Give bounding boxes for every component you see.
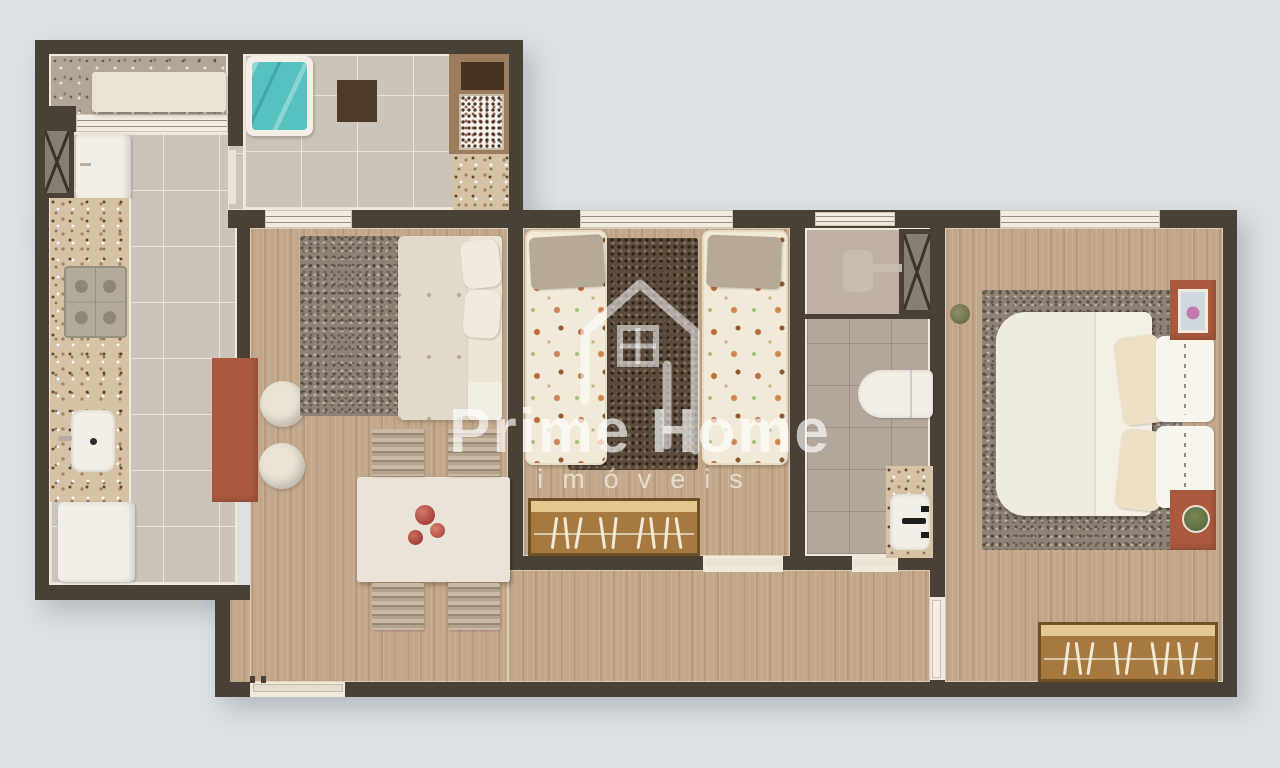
floor-plan-render: Prime Home imóveis [0,0,1280,768]
kitchen-sink-drain [90,438,97,445]
kitchen-base-appliance [58,502,135,582]
toilet [858,370,933,418]
wall-left-lower [215,585,230,697]
stool-2 [259,443,305,489]
shower-head [843,250,873,292]
wall-hall-kids-right [783,556,790,570]
master-rug-plant [950,304,970,324]
kids-door-panel [705,559,781,566]
wall-bottom-left-of-entrance [215,682,250,697]
entrance-door-hinge-mark-2 [261,676,266,683]
entrance-door-hinge-mark-1 [250,676,255,683]
nightstand-picture-frame [1178,289,1208,333]
kitchen-faucet [58,436,72,441]
wall-right-exterior [1223,210,1237,697]
wall-bottom-main [345,682,1237,697]
sofa-cushion-1 [460,238,503,290]
table-centerpiece-2 [408,530,423,545]
barbecue-coal-tray [459,94,504,150]
duct-shaft-kitchen [40,126,74,198]
nightstand-plant [1182,505,1210,533]
master-wardrobe-shelf [1041,625,1215,636]
master-wardrobe [1038,622,1218,682]
kids-wardrobe [528,498,700,556]
entrance-door-panel [253,684,343,692]
refrigerator [76,134,131,200]
refrigerator-handle [80,163,91,166]
balcony-bench [92,72,226,112]
wall-balcony-service-divider [228,40,243,146]
hallway-floor [508,570,930,682]
kids-wardrobe-shelf [531,501,697,512]
bathroom-door-panel [854,559,896,566]
wall-hall-bath-right [898,556,930,570]
sofa-throw-blanket [468,382,502,420]
master-door-hinge-mark-2 [939,592,944,597]
bathroom-window [815,212,895,226]
sofa-cushion-2 [462,289,501,339]
bathroom-faucet-knob-2 [921,532,929,538]
wall-living-kids-divider [508,228,523,570]
living-room-rug [300,236,400,416]
living-room-floor-extension [230,600,250,682]
table-centerpiece-3 [430,523,445,538]
service-daybed-mattress [252,62,307,130]
shower-arm [870,264,902,272]
kitchen-service-door-panel [229,150,236,204]
sofa-seat [398,236,470,420]
service-granite-counter [453,154,509,210]
duct-shaft-bathroom [899,229,935,315]
kids-bed-left-pillow [529,234,606,290]
wall-bath-master-divider-lower [930,680,945,697]
wall-hall-bath-left [805,556,852,570]
wall-top-block [35,40,523,54]
gas-cooktop [64,266,127,338]
dining-chair-3 [372,583,424,630]
wall-kitchen-living-divider [237,228,250,360]
wall-hall-kids-left [523,556,703,570]
kids-bedroom-window [580,210,733,228]
bathroom-faucet-knob-1 [921,506,929,512]
master-pillow-white-1 [1156,336,1214,422]
service-living-window [265,210,352,228]
master-door-hinge-mark-1 [930,592,935,597]
kids-bed-right-pillow [706,235,782,290]
dining-chair-1 [372,429,424,476]
wall-service-right [509,40,523,228]
master-bedroom-window [1000,210,1160,228]
kitchen-peninsula [212,358,258,502]
balcony-kitchen-window [76,114,228,132]
wall-kids-bath-divider [790,228,805,570]
dining-chair-2 [448,429,500,476]
table-centerpiece-1 [415,505,435,525]
service-dark-mat [337,80,377,122]
master-door-panel [932,600,941,678]
barbecue-grill [461,62,504,90]
dining-chair-4 [448,583,500,630]
bathroom-faucet [902,518,926,524]
